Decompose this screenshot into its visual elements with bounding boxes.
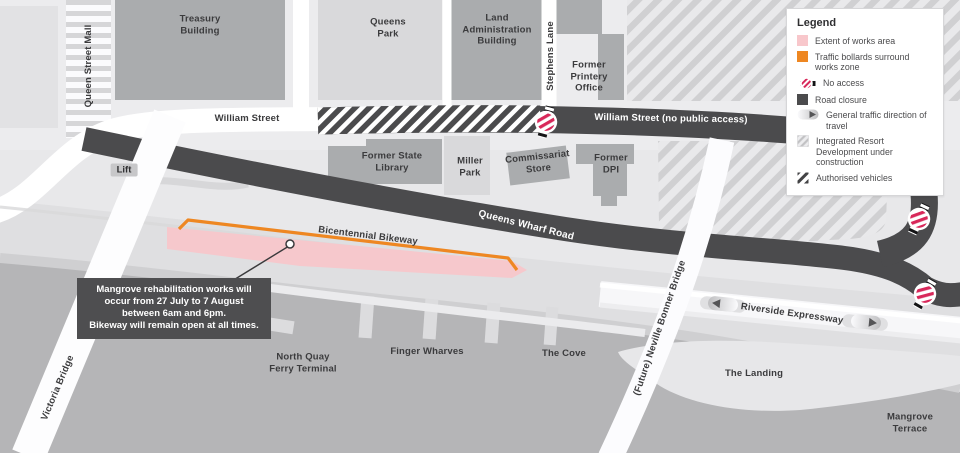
road-closure-swatch xyxy=(797,94,808,105)
legend-item-no-access: No access xyxy=(797,77,934,90)
printery-shape-a xyxy=(556,0,602,34)
callout-line-4: Bikeway will remain open at all times. xyxy=(81,320,267,332)
callout-marker xyxy=(286,240,294,248)
legend-item-authorised: Authorised vehicles xyxy=(797,172,934,184)
legend-item-traffic-direction: General traffic direction of travel xyxy=(797,109,934,131)
callout-line-2: occur from 27 July to 7 August xyxy=(81,296,267,308)
land-admin-building-shape xyxy=(450,0,545,100)
legend-item-works-area: Extent of works area xyxy=(797,35,934,47)
queens-park-shape xyxy=(318,0,442,100)
legend-title: Legend xyxy=(797,17,934,29)
bollards-swatch xyxy=(797,51,808,62)
traffic-direction-icon xyxy=(797,109,819,120)
printery-shape-b xyxy=(598,34,624,100)
treasury-building-shape xyxy=(115,0,285,100)
miller-park-shape xyxy=(444,136,490,195)
authorised-vehicles-zone xyxy=(318,119,540,121)
callout-line-3: between 6am and 6pm. xyxy=(81,308,267,320)
label-lift: Lift xyxy=(111,164,138,177)
city-block xyxy=(0,6,58,128)
legend-item-road-closure: Road closure xyxy=(797,94,934,106)
legend-panel: Legend Extent of works area Traffic boll… xyxy=(786,8,944,196)
no-access-icon xyxy=(797,77,816,90)
legend-item-ird: Integrated Resort Development under cons… xyxy=(797,135,934,168)
ird-hatch-icon xyxy=(797,135,809,147)
works-callout-box: Mangrove rehabilitation works will occur… xyxy=(77,278,271,339)
queen-street-mall-strip xyxy=(66,0,111,138)
callout-line-1: Mangrove rehabilitation works will xyxy=(81,284,267,296)
map-stage: Queen Street Mall Treasury Building Quee… xyxy=(0,0,960,453)
legend-item-bollards: Traffic bollards surround works zone xyxy=(797,51,934,73)
works-area-swatch xyxy=(797,35,808,46)
authorised-hatch-icon xyxy=(797,172,809,184)
